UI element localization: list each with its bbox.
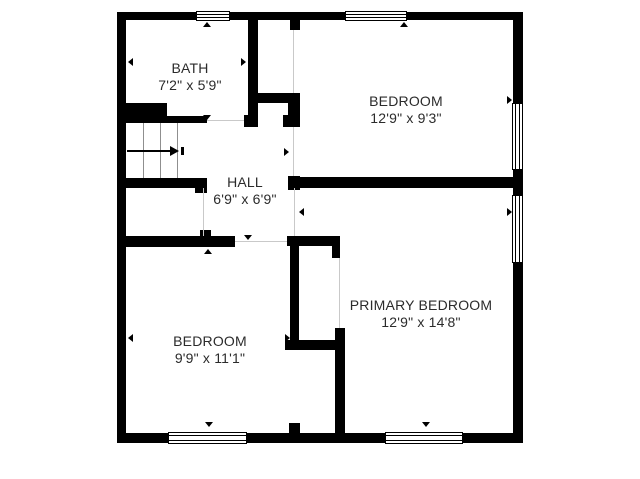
room-label-bedroom-bottom-left: BEDROOM 9'9" x 11'1" [173,333,247,367]
wall-hall-closet-bottom [117,236,235,247]
wall-closet-stub-top [290,20,300,30]
wall-bottom-stub [289,423,300,433]
window-bedroom-right [512,103,523,170]
room-label-primary-bedroom: PRIMARY BEDROOM 12'9" x 14'8" [350,297,493,331]
stair-direction-arrow [127,150,171,152]
room-name: HALL [213,174,276,191]
opening-hairline [293,30,294,93]
room-name: BEDROOM [369,93,443,110]
opening-marker-icon [203,22,211,27]
wall-bath-bottom [167,116,207,123]
room-dimensions: 12'9" x 14'8" [350,314,493,331]
floor-plan: BATH 7'2" x 5'9" BEDROOM 12'9" x 9'3" HA… [0,0,640,479]
opening-marker-icon [285,334,290,342]
wall-hall-closet-stub [200,230,211,247]
room-name: BATH [158,60,221,77]
opening-marker-icon [128,58,133,66]
room-label-bath: BATH 7'2" x 5'9" [158,60,221,94]
opening-marker-icon [401,178,409,183]
room-label-bedroom-top-right: BEDROOM 12'9" x 9'3" [369,93,443,127]
window-primary-right [512,195,523,263]
wall-exterior-left [117,12,126,443]
wall-exterior-top [117,12,523,20]
opening-marker-icon [299,208,304,216]
wall-bedroom-left-right [290,236,299,350]
wall-stairs-bottom-block [195,178,207,193]
stair-direction-arrow-head-icon [170,146,179,156]
wall-lower-divider [335,328,345,443]
opening-marker-icon [422,422,430,427]
opening-hairline [293,127,294,176]
opening-marker-icon [128,334,133,342]
wall-bath-right [248,20,258,115]
window-bedroom-bottom [168,432,247,444]
opening-marker-icon [284,148,289,156]
wall-closet-bottom-bath [258,93,290,103]
opening-marker-icon [204,249,212,254]
window-bedroom-top [345,11,407,21]
opening-marker-icon [507,208,512,216]
room-label-hall: HALL 6'9" x 6'9" [213,174,276,208]
wall-stair-landing [117,103,167,123]
wall-hall-bedroom-foot [283,115,293,127]
opening-marker-icon [507,96,512,104]
wall-primary-closet-stub [332,246,340,258]
stair-direction-arrow-tick [181,147,184,155]
opening-hairline [235,241,287,242]
opening-marker-icon [241,58,246,66]
wall-stairs-bottom [126,178,203,188]
wall-bath-right-foot [244,115,258,127]
opening-hairline [339,258,340,328]
room-name: PRIMARY BEDROOM [350,297,493,314]
window-bath-top [196,11,230,21]
opening-marker-icon [205,422,213,427]
window-primary-bottom [385,432,463,444]
opening-hairline [207,120,244,121]
room-dimensions: 6'9" x 6'9" [213,191,276,208]
room-dimensions: 12'9" x 9'3" [369,110,443,127]
opening-hairline [203,188,204,236]
opening-hairline [294,188,295,236]
opening-marker-icon [244,235,252,240]
room-name: BEDROOM [173,333,247,350]
opening-marker-icon [203,115,211,120]
room-dimensions: 9'9" x 11'1" [173,350,247,367]
opening-marker-icon [400,22,408,27]
room-dimensions: 7'2" x 5'9" [158,77,221,94]
